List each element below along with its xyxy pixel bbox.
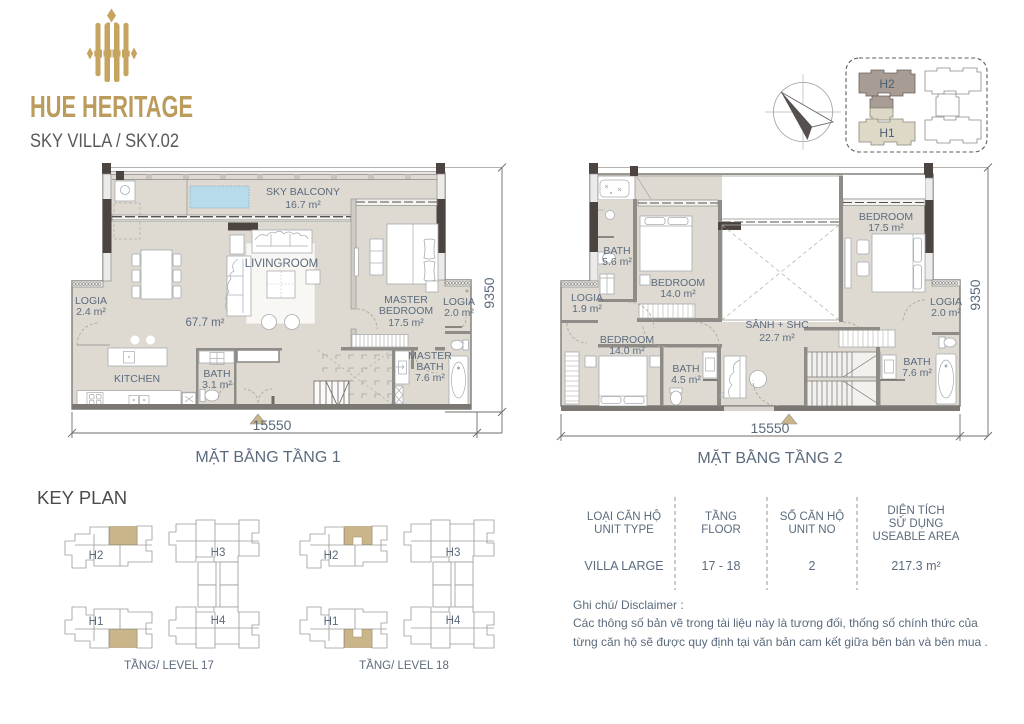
svg-text:H3: H3 bbox=[211, 547, 226, 559]
svg-text:9350: 9350 bbox=[481, 277, 497, 308]
svg-text:22.7 m²: 22.7 m² bbox=[759, 332, 795, 344]
svg-text:KITCHEN: KITCHEN bbox=[114, 373, 160, 385]
svg-text:17.5 m²: 17.5 m² bbox=[388, 317, 424, 329]
svg-text:SKY BALCONY: SKY BALCONY bbox=[266, 186, 340, 198]
svg-text:TẦNG/ LEVEL 18: TẦNG/ LEVEL 18 bbox=[359, 659, 449, 672]
svg-text:FLOOR: FLOOR bbox=[701, 524, 741, 536]
svg-text:H1: H1 bbox=[879, 126, 895, 140]
svg-text:LIVINGROOM: LIVINGROOM bbox=[245, 258, 318, 270]
svg-text:từng căn hộ sẽ được quy định t: từng căn hộ sẽ được quy định tại văn bản… bbox=[573, 635, 988, 649]
svg-text:2: 2 bbox=[809, 559, 816, 573]
svg-text:TẦNG/ LEVEL 17: TẦNG/ LEVEL 17 bbox=[124, 659, 214, 672]
svg-text:H2: H2 bbox=[89, 550, 104, 562]
svg-text:15550: 15550 bbox=[253, 417, 292, 433]
svg-text:14.0 m²: 14.0 m² bbox=[609, 345, 645, 357]
svg-text:H1: H1 bbox=[324, 616, 339, 628]
svg-text:MẶT BẰNG TẦNG 2: MẶT BẰNG TẦNG 2 bbox=[697, 448, 842, 467]
svg-text:2.4 m²: 2.4 m² bbox=[76, 306, 106, 318]
svg-text:H3: H3 bbox=[446, 547, 461, 559]
svg-text:H1: H1 bbox=[89, 616, 104, 628]
svg-text:9350: 9350 bbox=[967, 279, 983, 310]
svg-text:7.6 m²: 7.6 m² bbox=[415, 372, 445, 384]
svg-text:UNIT TYPE: UNIT TYPE bbox=[594, 524, 654, 536]
svg-text:SỐ CĂN HỘ: SỐ CĂN HỘ bbox=[780, 509, 845, 523]
svg-text:LOẠI CĂN HỘ: LOẠI CĂN HỘ bbox=[587, 510, 661, 523]
svg-text:H2: H2 bbox=[324, 550, 339, 562]
svg-text:67.7 m²: 67.7 m² bbox=[186, 317, 225, 329]
svg-text:TẦNG: TẦNG bbox=[705, 510, 737, 523]
svg-text:H2: H2 bbox=[879, 77, 895, 91]
svg-text:2.0 m²: 2.0 m² bbox=[444, 307, 474, 319]
svg-text:17.5 m²: 17.5 m² bbox=[868, 222, 904, 234]
svg-text:14.0 m²: 14.0 m² bbox=[660, 288, 696, 300]
svg-text:SKY VILLA / SKY.02: SKY VILLA / SKY.02 bbox=[30, 130, 179, 152]
svg-text:7.6 m²: 7.6 m² bbox=[902, 367, 932, 379]
svg-text:HUE HERITAGE: HUE HERITAGE bbox=[30, 89, 193, 124]
svg-text:VILLA LARGE: VILLA LARGE bbox=[584, 559, 663, 573]
svg-text:16.7 m²: 16.7 m² bbox=[285, 199, 321, 211]
svg-text:1.9 m²: 1.9 m² bbox=[572, 303, 602, 315]
svg-text:DIỆN TÍCH: DIỆN TÍCH bbox=[887, 504, 944, 517]
svg-text:MẶT BẰNG TẦNG 1: MẶT BẰNG TẦNG 1 bbox=[195, 447, 340, 466]
svg-text:15550: 15550 bbox=[751, 420, 790, 436]
svg-text:H4: H4 bbox=[446, 615, 461, 627]
svg-text:17 - 18: 17 - 18 bbox=[702, 559, 741, 573]
svg-text:UNIT NO: UNIT NO bbox=[788, 524, 835, 536]
svg-text:H4: H4 bbox=[211, 615, 226, 627]
svg-text:3.1 m²: 3.1 m² bbox=[202, 379, 232, 391]
svg-text:Ghi chú/ Disclaimer :: Ghi chú/ Disclaimer : bbox=[573, 598, 684, 612]
svg-text:4.5 m²: 4.5 m² bbox=[671, 374, 701, 386]
svg-text:217.3 m²: 217.3 m² bbox=[891, 559, 940, 573]
svg-text:5.6 m²: 5.6 m² bbox=[602, 256, 632, 268]
svg-text:USEABLE AREA: USEABLE AREA bbox=[873, 531, 960, 543]
svg-text:SỬ DỤNG: SỬ DỤNG bbox=[889, 517, 944, 530]
svg-text:KEY PLAN: KEY PLAN bbox=[37, 487, 127, 508]
svg-text:SẢNH + SHC: SẢNH + SHC bbox=[745, 318, 809, 331]
svg-text:Các thông số bản vẽ trong tài: Các thông số bản vẽ trong tài liệu này l… bbox=[573, 616, 978, 630]
svg-text:BEDROOM: BEDROOM bbox=[379, 305, 433, 317]
svg-text:2.0 m²: 2.0 m² bbox=[931, 307, 961, 319]
